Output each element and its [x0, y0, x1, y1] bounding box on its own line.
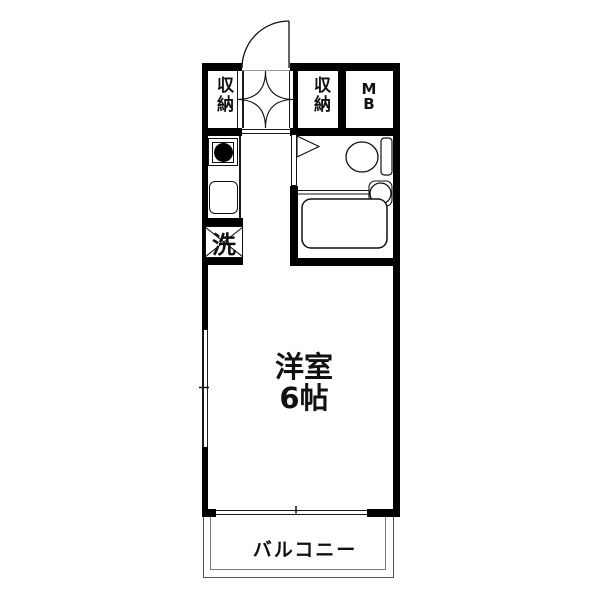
room-name: 洋室 — [224, 352, 384, 383]
entrance-jamb-left-outer — [237, 71, 239, 128]
bathroom-door-triangle — [297, 136, 319, 157]
meter-box-line2: B — [359, 97, 379, 112]
bottom-window-line-inner — [216, 514, 367, 516]
left-wall-lower — [202, 447, 208, 517]
bottom-wall-right-segment — [367, 509, 400, 517]
entrance-threshold-line-2 — [242, 133, 290, 135]
wall-below-left-closet — [202, 128, 242, 136]
basin-counter — [369, 181, 392, 206]
floorplan-canvas: 収納 収納 M B 洗 洋室 6帖 バルコニー — [0, 0, 600, 600]
partition-right-closet-left — [293, 71, 298, 128]
left-window-line-inner — [207, 330, 209, 447]
room-label: 洋室 6帖 — [224, 352, 384, 414]
balcony-label: バルコニー — [210, 535, 400, 562]
bathroom-left-wall — [290, 186, 298, 266]
room-size: 6帖 — [224, 383, 384, 414]
bathtub — [302, 199, 387, 248]
wall-below-right-closet-mb — [290, 128, 400, 136]
kitchen-sink — [209, 181, 238, 214]
entrance-jamb-left-inner — [242, 71, 244, 128]
entrance-jamb-right-inner — [289, 71, 291, 128]
entrance-floor-arc-pattern — [237, 71, 294, 128]
washing-machine-label: 洗 — [205, 227, 243, 258]
entrance-opening-line — [242, 70, 290, 71]
bathroom-bottom-wall — [290, 258, 400, 266]
bottom-window-line-outer — [216, 510, 367, 512]
toilet-tank — [381, 138, 392, 175]
left-wall-upper — [202, 63, 208, 330]
bathroom-door-panel — [291, 134, 297, 186]
kitchen-counter-edge — [239, 136, 241, 218]
left-window-line-outer — [202, 330, 204, 447]
basin-bowl — [370, 183, 391, 204]
closet-right-label: 収納 — [309, 76, 331, 126]
bottom-wall-left-segment — [202, 509, 216, 517]
bath-ledge-lines — [298, 191, 370, 195]
entrance-door-arc — [242, 21, 289, 68]
meter-box-label: M B — [359, 82, 379, 112]
stove-burner — [214, 143, 233, 162]
top-wall-left-segment — [202, 63, 242, 71]
top-wall-right-segment — [290, 63, 400, 71]
entrance-threshold-line-1 — [242, 129, 290, 131]
toilet-bowl — [346, 142, 378, 172]
closet-left-label: 収納 — [212, 76, 234, 126]
partition-closet-mb — [338, 71, 346, 128]
